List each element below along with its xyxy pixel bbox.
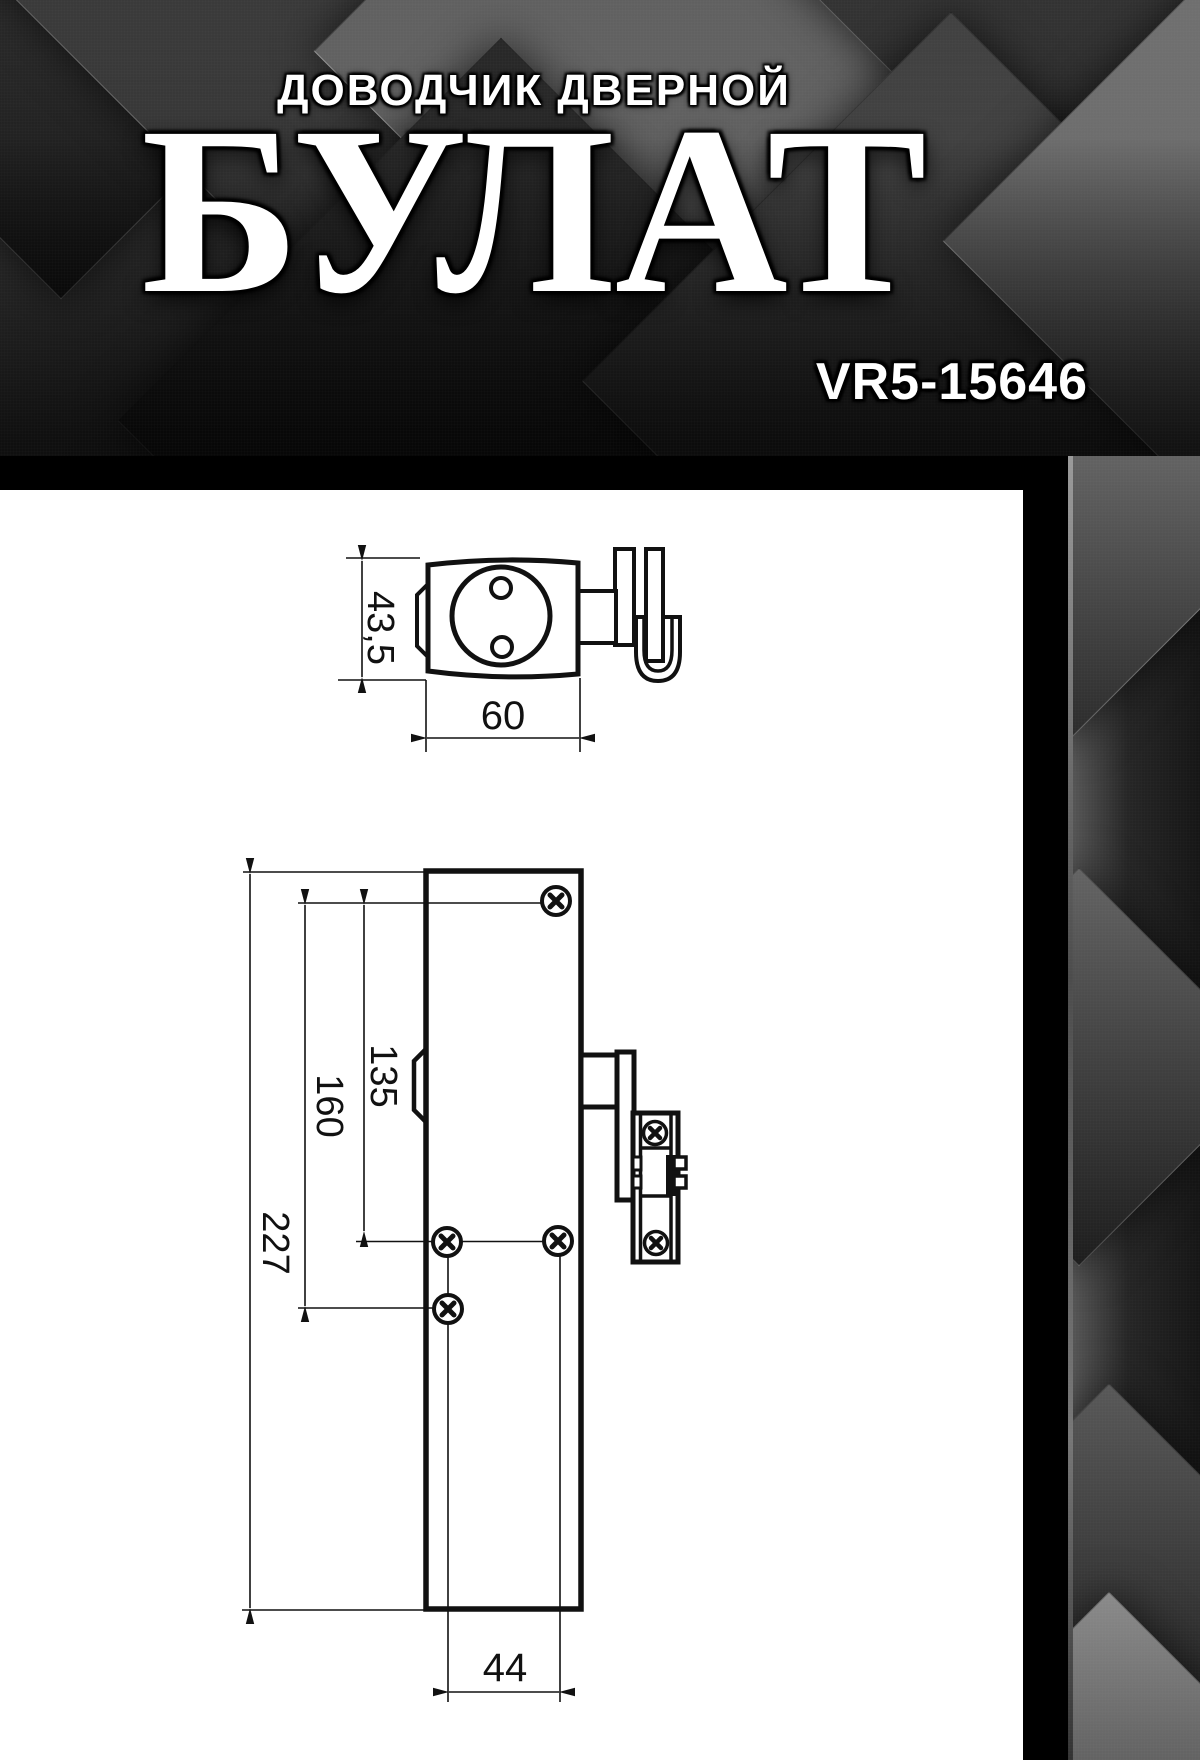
mounting-screw (542, 887, 570, 915)
mounting-screw (433, 1228, 461, 1256)
dim-60-label: 60 (481, 694, 526, 738)
mounting-screw (434, 1295, 462, 1323)
arm-notch (633, 1157, 641, 1170)
model-number: VR5-15646 (816, 352, 1088, 412)
frame-right-bar (1023, 456, 1068, 1760)
arm-screw (645, 1232, 668, 1255)
dim-43-5-label: 43,5 (359, 591, 401, 665)
arm-link-outer (646, 549, 663, 661)
screw-hole (491, 578, 511, 598)
product-page: ДОВОДЧИК ДВЕРНОЙ БУЛАТ VR5-15646 (0, 0, 1200, 1760)
metal-texture (1068, 456, 1200, 1760)
dim-160-label: 160 (308, 1074, 350, 1137)
side-view-drawing: 227 160 135 44 (220, 850, 700, 1730)
dim-135-label: 135 (362, 1044, 404, 1107)
arm-assembly (581, 1052, 686, 1262)
background-right-strip (1068, 456, 1200, 1760)
header-banner: ДОВОДЧИК ДВЕРНОЙ БУЛАТ VR5-15646 (0, 0, 1200, 462)
screw-hole (492, 637, 512, 657)
arm-connector (578, 591, 616, 643)
arm-connector (581, 1055, 617, 1107)
brand-title: БУЛАТ (0, 96, 1068, 324)
mounting-screw (544, 1227, 572, 1255)
dim-44-label: 44 (483, 1646, 528, 1690)
arm-screw (644, 1122, 667, 1145)
drawing-area: 43,5 60 (0, 490, 1023, 1760)
arm-notch (633, 1176, 641, 1188)
dim-227-label: 227 (254, 1211, 296, 1274)
top-view-drawing: 43,5 60 (320, 480, 700, 770)
arm-tab (674, 1176, 686, 1188)
arm-tab (674, 1157, 686, 1169)
